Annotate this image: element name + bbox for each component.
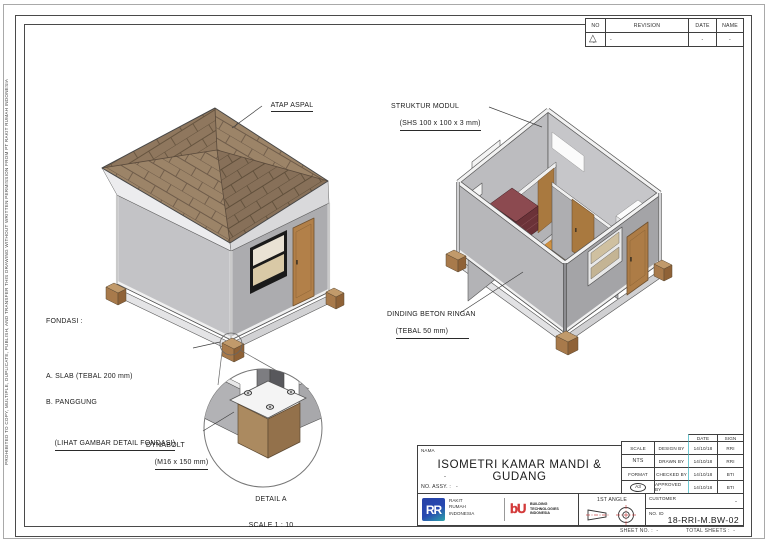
- approved-by-label: APPROVED BY: [654, 480, 689, 494]
- bti-company-name: BUILDING TECHNOLOGIES INDONESIA: [530, 502, 559, 516]
- logo-divider: [504, 498, 505, 521]
- label-detail-a: DETAIL A SCALE 1 : 10: [206, 478, 336, 543]
- title-box: NAMA ISOMETRI KAMAR MANDI & GUDANG - NO.…: [417, 445, 622, 494]
- rev-row-no: △ -: [585, 32, 606, 47]
- label-atap-aspal: ATAP ASPAL: [262, 93, 313, 121]
- rev-header-date: DATE: [688, 18, 717, 33]
- format-label-cell: FORMAT: [621, 467, 655, 481]
- checked-by-date: 14/10/18: [688, 467, 718, 481]
- drawing-subtitle: -: [444, 474, 446, 480]
- format-a3-badge: A3: [630, 483, 646, 492]
- projection-cell: 1ST ANGLE: [578, 493, 646, 526]
- drawing-number: 18-RRI-M.BW-02: [646, 515, 739, 525]
- label-dinding-beton: DINDING BETON RINGAN (TEBAL 50 mm): [387, 293, 476, 348]
- approved-by-sign: BTI: [717, 480, 744, 494]
- approved-by-date: 14/10/18: [688, 480, 718, 494]
- drawn-by-date: 14/10/18: [688, 454, 718, 468]
- logos-cell: RR RAKIT RUMAH INDONESIA bU BUILDING TEC…: [417, 493, 579, 526]
- customer-cell: CUSTOMER -: [645, 493, 744, 509]
- scale-label-cell: SCALE: [621, 441, 655, 455]
- design-by-date: 14/10/18: [688, 441, 718, 455]
- design-by-label: DESIGN BY: [654, 441, 689, 455]
- design-by-sign: RRI: [717, 441, 744, 455]
- total-sheets-footer: TOTAL SHEETS : -: [686, 528, 735, 534]
- bti-logo: bU: [510, 501, 525, 516]
- rev-header-revision: REVISION: [605, 18, 689, 33]
- format-value-cell: A3: [621, 480, 655, 494]
- sheet-no-footer: SHEET NO. : -: [620, 528, 658, 534]
- first-angle-symbol-icon: [586, 505, 640, 525]
- rev-row-name: -: [716, 32, 744, 47]
- rev-row-date: -: [688, 32, 717, 47]
- drawn-by-sign: RRI: [717, 454, 744, 468]
- nama-label: NAMA: [421, 448, 435, 453]
- drawing-title: ISOMETRI KAMAR MANDI & GUDANG: [418, 459, 621, 483]
- rev-header-no: NO: [585, 18, 606, 33]
- left-building-door: [293, 218, 314, 306]
- drawn-by-label: DRAWN BY: [654, 454, 689, 468]
- checked-by-sign: BTI: [717, 467, 744, 481]
- rev-row-revision: -: [605, 32, 689, 47]
- no-assy: NO. ASSY. : -: [421, 484, 458, 490]
- rri-company-name: RAKIT RUMAH INDONESIA: [449, 498, 474, 517]
- projection-label: 1ST ANGLE: [579, 497, 645, 503]
- scale-value-cell: NTS: [621, 454, 655, 468]
- label-struktur-modul: STRUKTUR MODUL (SHS 100 x 100 x 3 mm): [391, 85, 481, 140]
- checked-by-label: CHECKED BY: [654, 467, 689, 481]
- right-building-isometric: [446, 110, 672, 355]
- rev-header-name: NAME: [716, 18, 744, 33]
- label-dynabolt: DYNABOLT (M16 x 150 mm): [146, 424, 208, 479]
- detail-a-view: [196, 348, 338, 487]
- drawing-sheet: PROHIBITED TO COPY, MULTIPLE, DUPLICATE,…: [0, 0, 768, 543]
- no-id-cell: NO. ID 18-RRI-M.BW-02: [645, 508, 744, 526]
- rri-logo: RR: [422, 498, 445, 521]
